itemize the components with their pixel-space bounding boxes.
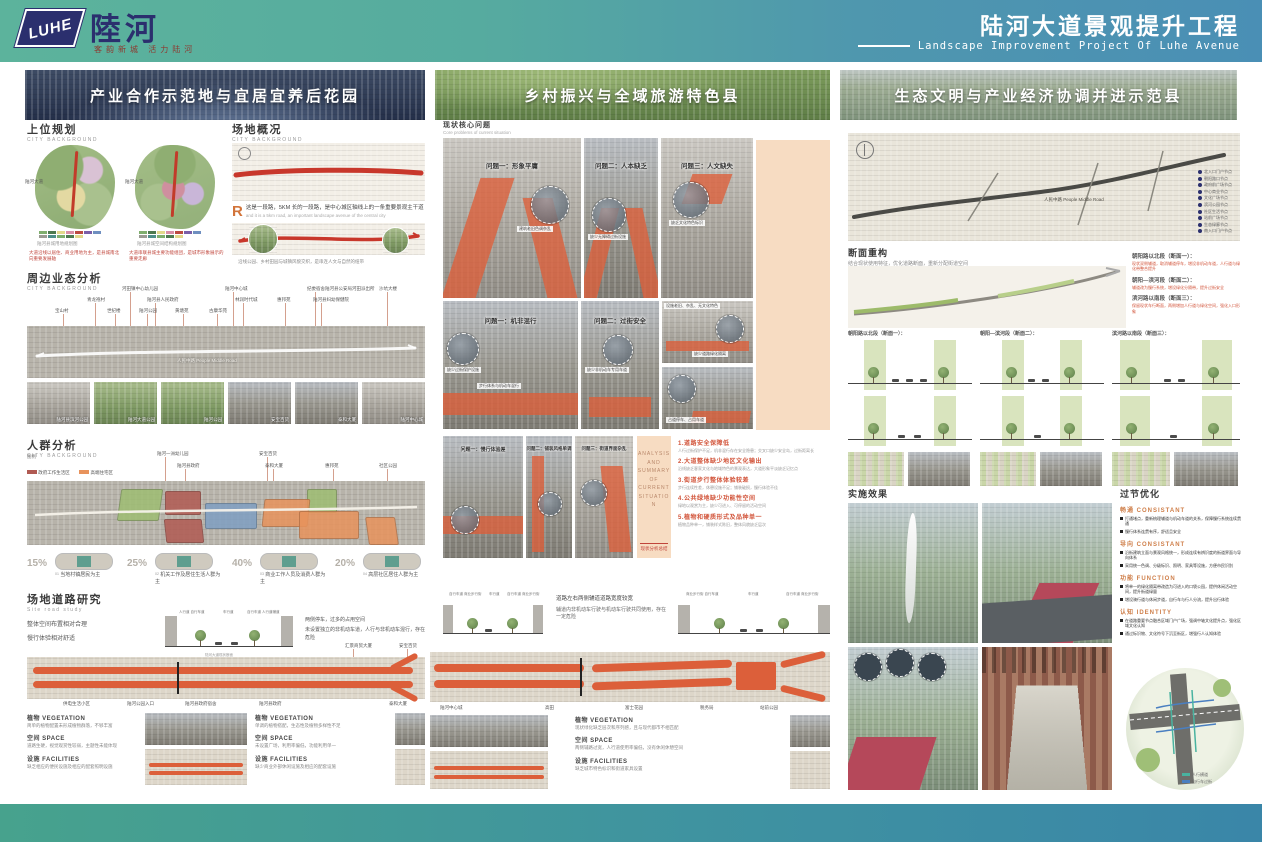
section-subtitle: Core problems of current situation: [443, 130, 511, 135]
poi-photo: 安宝百货: [228, 382, 291, 424]
node-section-head: 畅通 CONSISTANT: [1120, 505, 1242, 514]
banner-label: 生态文明与产业经济协调并进示范县: [840, 85, 1237, 106]
plan-callout: 陆河公园入口: [127, 701, 154, 707]
callout-circle: [668, 375, 696, 403]
road-plan-strip: [27, 657, 425, 699]
rebuild-note-head: 朝阳路以北段（断面一）：: [1132, 252, 1240, 260]
veg-body: 现状绿化缺乏层次和序列感，且与现代都市不相匹配: [575, 725, 775, 731]
render-photo-pergola: [982, 647, 1112, 790]
callout-circle: [581, 480, 607, 506]
signage-callout-circle: [854, 653, 882, 681]
poi-photo: 陆河大道公园: [94, 382, 157, 424]
stat-pct: 40%: [232, 558, 252, 569]
callout-caption: 设施老旧、杂乱、无文化特色: [664, 303, 720, 309]
summary-head: 2.大道整体缺少地区文化输出: [678, 456, 830, 465]
veg-body: 简单的植物配置未形成植物群落，不够丰富: [27, 723, 139, 729]
cross-section-existing: 人行道 自行车道 车行道 自行车道 人行道辅道 陆河大道现状断面: [165, 611, 293, 653]
space-title: 空间 SPACE: [255, 733, 387, 742]
rebuild-notes: 朝阳路以北段（断面一）： 现状双侧辅道，取消辅道停车，增设非机动车道，人行道与绿…: [1132, 252, 1240, 318]
veg-title: 植物 VEGETATION: [255, 713, 387, 722]
summary-head: 1.道路安全保障低: [678, 438, 830, 447]
stat-label: 03 商业工作人员及消费人群为主: [260, 572, 330, 586]
section-label: 车行道: [748, 592, 759, 597]
section-label: 自行车道 人行道辅道: [247, 610, 279, 615]
section-title: 断面重构: [848, 246, 968, 259]
group-title: 朝阳路以北段（断面一）：: [848, 330, 972, 337]
street-photo: [1040, 452, 1102, 486]
group-section-proposed: [848, 396, 972, 446]
section-title: 场地概况: [232, 121, 428, 137]
callout-circle: [592, 198, 626, 232]
stat-capsule: [55, 553, 113, 570]
peach-panel: [756, 140, 830, 430]
veg-title: 植物 VEGETATION: [575, 715, 775, 724]
avenue-white-line: [27, 326, 425, 378]
node-opt-title: 过节优化: [1120, 487, 1160, 500]
callout-caption: 建筑老旧色调杂乱: [517, 226, 553, 232]
section-marker: [177, 662, 179, 694]
node-bullet: 打通堵点，重新梳理辅道与机动车道的关系，保障慢行系统连续贯通: [1120, 516, 1242, 526]
signage-callout-circle: [918, 653, 946, 681]
space-body: 未设置广场，利用率偏低，功能利用单一: [255, 743, 387, 749]
veg-title: 植物 VEGETATION: [27, 713, 139, 722]
section-title: 场地道路研究: [27, 591, 425, 607]
group-title: 滨河路以南段（断面三）：: [1112, 330, 1240, 337]
plan-thumbnail: [430, 751, 548, 789]
node-bullet: 将单一的绿化隔离带改造为可进入的口袋公园，提供休闲活动空间，提升街道绿量: [1120, 584, 1242, 594]
summary-head: 3.街道步行整体体验较差: [678, 475, 830, 484]
poi-photo: 陆河公园: [161, 382, 224, 424]
segment-diagram: [848, 266, 1126, 328]
summary-list: 1.道路安全保障低 人行过街保护不足，机非混行存在安全隐患；交叉口缺少安全岛，过…: [678, 438, 830, 530]
section-group-1: 朝阳路以北段（断面一）：: [848, 330, 972, 337]
legend-item: 政府前广场节点: [1198, 182, 1232, 189]
context-diagram-2: [232, 223, 425, 255]
red-lane: [33, 667, 413, 674]
logo-name: 陸河: [90, 4, 160, 49]
legend-item: 北入口门户节点: [1198, 169, 1232, 176]
callout-circle: [531, 186, 569, 224]
poi-photo: 陆河县滨河公园: [27, 382, 90, 424]
page-subtitle: Landscape Improvement Project Of Luhe Av…: [858, 40, 1240, 52]
page-title: 陆河大道景观提升工程: [980, 7, 1240, 41]
sculpture-shape: [904, 513, 918, 623]
plan-callout: 站前公园: [760, 705, 778, 711]
street-photo: [145, 713, 247, 745]
planning-note: 大道沿线以居住、商业用地为主，是县城南北向重要发展轴: [29, 250, 121, 263]
summary-body: 人行过街保护不足，机非混行存在安全隐患；交叉口缺少安全岛，过街距离长: [678, 448, 830, 453]
problem-photo: 问题二：铺装风格单调: [526, 436, 572, 558]
mid-section-notes: 道路左右两侧辅道道路宽度较宽 辅道内非机动车行驶与机动车行驶共同使用，存在一定危…: [556, 596, 668, 621]
stat-capsule: [260, 553, 318, 570]
node-bullet: 沿街建筑立面与景观风格统一，形成连续有辨识度的街道界面与导向体系: [1120, 550, 1242, 560]
problem-photo: 占道停车、占用车道: [662, 367, 753, 429]
node-opt-sections: 畅通 CONSISTANT 打通堵点，重新梳理辅道与机动车道的关系，保障慢行系统…: [1120, 500, 1242, 639]
summary-body: 植物品种单一，铺装样式陈旧，整体风貌缺乏层次: [678, 522, 830, 527]
summary-band-en: ANALYSIS AND SUMMARY OF CURRENT SITUATIO…: [637, 450, 671, 510]
luhe-logo-icon: LUHE: [15, 9, 86, 47]
plan-thumbnail: [848, 452, 904, 486]
section-group-3: 滨河路以南段（断面三）：: [1112, 330, 1240, 337]
space-body: 两侧辅路过宽，人行道使用率偏低，没有休闲休憩空间: [575, 745, 775, 751]
section-label: 人行道 自行车道: [179, 610, 204, 615]
legend-item: 站前广场节点: [1198, 215, 1232, 222]
road-note-right: 两侧停车，过多的占用空间 未设置独立的非机动车道，人行与非机动车混行，存在危险: [305, 617, 425, 642]
segment-lines: [848, 266, 1126, 328]
header-band: LUHE 陸河 客韵新城 活力陆河 陆河大道景观提升工程 Landscape I…: [0, 0, 1262, 62]
tree-icon: [249, 630, 260, 641]
pergola-beams: [982, 647, 1112, 673]
callout-caption: 缺乏文化特色标识: [669, 220, 705, 226]
section-title: 现状核心问题: [443, 120, 511, 130]
section-subtitle: CITY BACKGROUND: [27, 137, 227, 143]
stat-group: 25%02 机关工作及居住生活人群为主: [127, 553, 147, 571]
asphalt: [982, 594, 1112, 643]
plan-thumbnail: [980, 452, 1036, 486]
problem-title: 问题一：机非混行: [443, 315, 578, 325]
avenue-dark-line: [848, 133, 1240, 241]
poster-board: LUHE 陸河 客韵新城 活力陆河 陆河大道景观提升工程 Landscape I…: [0, 0, 1262, 842]
cross-section-mid-right: 商业步行街 自行车道 车行道 自行车道 商业步行街: [678, 600, 830, 640]
problem-photo: 设施老旧、杂乱、无文化特色 缺少道路绿化隔离: [662, 301, 753, 363]
overview-note-en: and it is a 5km road, an important lands…: [232, 213, 425, 218]
street-photo: [790, 715, 830, 747]
rebuild-note-body: 辅道改为慢行系统，增设绿化分隔带，提升过街安全: [1132, 285, 1240, 290]
problem-title: 问题一：形象平庸: [443, 160, 581, 170]
node-bullet: 增设骑行道与休闲步道，自行车与行人分流，提升出行体验: [1120, 597, 1242, 602]
problem-photo: 问题三：人文缺失 缺乏文化特色标识: [661, 138, 753, 298]
callout-circle: [716, 315, 744, 343]
legend-item: 自行车过街: [1182, 779, 1212, 786]
summary-head: 5.植物和硬质形式及品种单一: [678, 512, 830, 521]
plan-callout: 陆河县政府: [259, 701, 282, 707]
banner-ecology: 生态文明与产业经济协调并进示范县: [840, 70, 1237, 120]
veg-body: 单调的植物搭配，生态性及植物多样性不足: [255, 723, 387, 729]
section-road-study: 场地道路研究 Site road study 整体空间布置相对合理 慢行体验相对…: [27, 591, 425, 713]
problem-title: 问题二：过街安全: [581, 315, 659, 325]
group-section-existing: [980, 340, 1104, 390]
section-rebuild-title: 断面重构 结合现状使用特征，优化道路断面，重新分配街道空间: [848, 246, 968, 267]
drop-cap: R: [232, 205, 243, 219]
facilities-title: 设施 FACILITIES: [575, 756, 775, 765]
road-note: 整体空间布置相对合理: [27, 621, 147, 629]
banner-rural: 乡村振兴与全域旅游特色县: [435, 70, 830, 120]
plan-callout: 陆河中心城: [440, 705, 463, 711]
poi-photo: 陆河中心城: [362, 382, 425, 424]
stat-label: 04 高层社区居住人群为主: [363, 572, 425, 579]
avenue-white-line: [27, 481, 425, 545]
problem-photo: 问题一：机非混行 缺少过街保护设施 步行体系与机动车混行: [443, 301, 578, 429]
node-bullet: 采用统一色调、分级标识、照明、家具等设施，方便市民识别: [1120, 563, 1242, 568]
callout-caption: 缺少非机动车专用车道: [585, 367, 629, 373]
facilities-title: 设施 FACILITIES: [255, 754, 387, 763]
rebuild-note-head: 滨河路以南段（断面三）：: [1132, 294, 1240, 302]
footer-band: [0, 804, 1262, 842]
avenue-label: 陆河大道: [25, 179, 43, 185]
summary-body: 绿地以观赏为主，缺少可进入、可停留的活动空间: [678, 503, 830, 508]
stat-group: 20%04 高层社区居住人群为主: [335, 553, 355, 571]
plan-callout: 高田: [545, 705, 554, 711]
title-dash: [858, 45, 910, 47]
road-plan-strip-mid: [430, 652, 830, 702]
section-title: 周边业态分析: [27, 270, 425, 286]
problem-title: 问题三：人文缺失: [661, 160, 753, 170]
logo-mark-text: LUHE: [27, 14, 80, 43]
stat-pct: 15%: [27, 558, 47, 569]
rebuild-note-body: 保留现状车行断面，两侧增加人行道与绿化空间，强化入口形象: [1132, 303, 1240, 314]
summary-head: 4.公共绿地缺少功能性空间: [678, 493, 830, 502]
problem-photo: 问题三：街道界面杂乱: [575, 436, 633, 558]
stat-pct: 25%: [127, 558, 147, 569]
plan-thumbnail: [395, 749, 425, 785]
section-group-2: 朝阳—滨河段（断面二）：: [980, 330, 1104, 337]
compass-icon: [238, 147, 251, 160]
section-label: 自行车道 商业步行街: [786, 592, 818, 597]
node-section-head: 导向 CONSISTANT: [1120, 539, 1242, 548]
overview-note-row: R 这是一段路，5KM 长的一段路，是中心城区轴线上的一条重要景观主干道 and…: [232, 205, 425, 219]
notes-block-mid: 植物 VEGETATION 现状绿化缺乏层次和序列感，且与现代都市不相匹配 空间…: [575, 715, 775, 776]
logo-tagline: 客韵新城 活力陆河: [94, 44, 196, 55]
intersection-diagram: 人行横道 自行车过街: [1126, 668, 1244, 790]
callout-circle: [673, 182, 709, 218]
facilities-body: 缺乏相应的便民设施及相应的配套照明设施: [27, 764, 139, 770]
callout-caption: 缺少过街保护设施: [445, 367, 481, 373]
map-legend-chips: [139, 231, 201, 238]
effect-title: 实施效果: [848, 487, 888, 500]
summary-body: 沿线缺乏客家文化与地域特色的景观表达，大道形象平淡缺乏记忆点: [678, 466, 830, 471]
masterplan-map: 人民中路 People Middle Road 北入口门户节点 朝阳路口节点 政…: [848, 133, 1240, 241]
map-caption: 陆河县城空间结构规划图: [137, 241, 187, 247]
problem-photo: 问题一：慢行体验差: [443, 436, 523, 558]
aerial-photo-circle: [248, 224, 278, 254]
problem-title: 问题一：慢行体验差: [443, 446, 523, 453]
street-photo: [430, 715, 548, 747]
planning-note: 大道串联县城主要功能组团，是城市形象展示的重要走廊: [129, 250, 225, 263]
building-block: [281, 616, 293, 646]
problem-photo: 问题二：人本缺乏 缺少无障碍过街设施: [584, 138, 658, 298]
notes-block-a: 植物 VEGETATION 简单的植物配置未形成植物群落，不够丰富 空间 SPA…: [27, 713, 139, 774]
building-block: [165, 616, 177, 646]
poi-label: 沙坑大楼: [379, 286, 397, 330]
avenue-line: [71, 151, 79, 217]
avenue-curve: [232, 143, 425, 201]
stat-group: 40%03 商业工作人员及消费人群为主: [232, 553, 252, 571]
node-section-head: 功能 FUNCTION: [1120, 573, 1242, 582]
tree-icon: [195, 630, 206, 641]
section-crowd: 人群分析 CITY BACKGROUND 图例 政府工作生活区 高端住宅区 核心…: [27, 437, 425, 587]
space-title: 空间 SPACE: [27, 733, 139, 742]
facilities-body: 缺少商业外部休闲设施及相应的配套设施: [255, 764, 387, 770]
plan-callout: 富士花园: [625, 705, 643, 711]
stat-pct: 20%: [335, 558, 355, 569]
callout-caption: 步行体系与机动车混行: [477, 383, 521, 389]
callout-caption: 缺少无障碍过街设施: [588, 234, 628, 240]
stat-capsule: [363, 553, 421, 570]
map-caption: 陆河县城用地规划图: [37, 241, 78, 247]
car-icon: [231, 642, 238, 645]
group-section-existing: [1112, 340, 1240, 390]
space-title: 空间 SPACE: [575, 735, 775, 744]
problem-photo: 问题一：形象平庸 建筑老旧色调杂乱: [443, 138, 581, 298]
car-icon: [215, 642, 222, 645]
banner-industry: 产业合作示范地与宜居宜养后花园: [25, 70, 425, 120]
legend-item: 政府工作生活区: [27, 470, 70, 475]
masterplan-legend: 北入口门户节点 朝阳路口节点 政府前广场节点 中心商业节点 文化广场节点 滨河公…: [1198, 169, 1232, 235]
node-bullet: 慢行体系连贯有序，舒适且安全: [1120, 529, 1242, 534]
notes-block-b: 植物 VEGETATION 单调的植物搭配，生态性及植物多样性不足 空间 SPA…: [255, 713, 387, 774]
legend-item: 南入口门户节点: [1198, 228, 1232, 235]
section-label: 车行道: [489, 592, 500, 597]
plan-callout: 泰和大厦: [389, 701, 407, 707]
plan-callout: 供电生活小区: [63, 701, 90, 707]
landuse-map: [35, 145, 115, 229]
group-section-proposed: [980, 396, 1104, 446]
red-bike-lane: [848, 737, 937, 790]
facilities-title: 设施 FACILITIES: [27, 754, 139, 763]
callout-caption: 缺少道路绿化隔离: [692, 351, 728, 357]
plan-callout: 税务局: [700, 705, 714, 711]
section-label: 自行车道 商业步行街: [507, 592, 539, 597]
section-label: 自行车道 商业步行街: [449, 592, 481, 597]
callout-circle: [603, 335, 633, 365]
plan-thumbnail: [790, 751, 830, 789]
rebuild-note-head: 朝阳—滨河段（断面二）：: [1132, 276, 1240, 284]
street-photo: [1174, 452, 1238, 486]
problem-title: 问题二：人本缺乏: [584, 160, 658, 170]
render-photo-street: [848, 647, 978, 790]
signage-callout-circle: [886, 649, 914, 677]
plan-thumbnail: [145, 749, 247, 785]
render-photo-gateway: [848, 503, 978, 643]
callout-circle: [538, 492, 562, 516]
section-title: 上位规划: [27, 121, 227, 137]
poi-photo: 泰和大厦: [295, 382, 358, 424]
context-diagram: [232, 143, 425, 201]
legend-item: 人行横道: [1182, 772, 1212, 779]
stat-label: 01 当地村镇居民为主: [55, 572, 121, 579]
plan-callout: 陆河县政府宿舍: [185, 701, 217, 707]
map-legend-chips: [39, 231, 101, 238]
problem-title: 问题三：街道界面杂乱: [575, 446, 633, 452]
callout-circle: [447, 333, 479, 365]
ground-line: [165, 646, 293, 647]
red-lane: [33, 681, 413, 688]
facilities-body: 缺乏城市特色标识和街道家具设置: [575, 766, 775, 772]
section-subtitle: CITY BACKGROUND: [27, 453, 425, 459]
compass-icon: [856, 141, 874, 159]
cross-section-mid-left: 自行车道 商业步行街 车行道 自行车道 商业步行街: [443, 600, 543, 640]
legend-title: 图例: [27, 454, 36, 460]
stat-group: 15%01 当地村镇居民为主: [27, 553, 47, 571]
banner-label: 乡村振兴与全域旅游特色县: [435, 85, 830, 106]
road-name-label: 人民中路 People Middle Road: [177, 358, 237, 364]
section-overview: 场地概况 CITY BACKGROUND R 这是一段路，5KM 长的一段路，是…: [232, 121, 428, 266]
group-title: 朝阳—滨河段（断面二）：: [980, 330, 1104, 337]
summary-body: 步行连续性差，休憩设施不足；铺装破损，慢行体验不佳: [678, 485, 830, 490]
street-photo: [395, 713, 425, 745]
render-photo-bikelane: [982, 503, 1112, 643]
road-note: 慢行体验相对舒适: [27, 635, 147, 643]
problem-photo: 问题二：过街安全 缺少非机动车专用车道: [581, 301, 659, 429]
walkway: [1006, 685, 1088, 790]
crowd-zone-map: [27, 481, 425, 545]
section-business: 周边业态分析 CITY BACKGROUND 河田镇中心幼儿园 陆河中心城 纪委…: [27, 270, 425, 430]
group-section-proposed: [1112, 396, 1240, 446]
callout-circle: [451, 506, 479, 534]
street-photo: [908, 452, 970, 486]
legend-item: 高端住宅区: [79, 470, 113, 475]
group-section-existing: [848, 340, 972, 390]
section-label: 车行道: [223, 610, 234, 615]
avenue-label: 陆河大道: [125, 179, 143, 185]
legend-item: 文化广场节点: [1198, 195, 1232, 202]
summary-band: ANALYSIS AND SUMMARY OF CURRENT SITUATIO…: [637, 436, 671, 558]
aerial-strip-map: 人民中路 People Middle Road: [27, 326, 425, 378]
space-body: 道路生硬，视觉观赏性较弱，主题性未能体现: [27, 743, 139, 749]
intersection-legend: 人行横道 自行车过街: [1182, 772, 1212, 785]
node-bullet: 通过标识物、文化符号下沉至街区，增强行人认知体验: [1120, 631, 1242, 636]
section-title: 人群分析: [27, 437, 425, 453]
road-name-label: 人民中路 People Middle Road: [1044, 197, 1104, 203]
problem-title: 问题二：铺装风格单调: [526, 446, 572, 452]
aerial-photo-circle: [382, 227, 409, 254]
rebuild-note-body: 现状双侧辅道，取消辅道停车，增设非机动车道，人行道与绿化带整合提升: [1132, 261, 1240, 272]
section-problems-title: 现状核心问题 Core problems of current situatio…: [443, 120, 511, 135]
stat-label: 02 机关工作及居住生活人群为主: [155, 572, 225, 586]
overview-caption: 沿线公园、乡村田园与城镇风貌交织，是串连人文与自然的纽带: [238, 259, 364, 265]
node-bullet: 在道路重要节点融合区域门户广场，强调中轴文化提升点，强化区域文化认知: [1120, 618, 1242, 628]
banner-label: 产业合作示范地与宜居宜养后花园: [25, 85, 425, 106]
structure-map: [135, 145, 215, 229]
summary-band-cn: 现状分析总结: [640, 543, 668, 552]
plan-thumbnail: [1112, 452, 1170, 486]
overview-note: 这是一段路，5KM 长的一段路，是中心城区轴线上的一条重要景观主干道: [232, 205, 425, 213]
node-section-head: 认知 IDENTITY: [1120, 607, 1242, 616]
section-label: 商业步行街 自行车道: [686, 592, 718, 597]
section-planning: 上位规划 CITY BACKGROUND 陆河大道 陆河大道 陆河县城用地规划图…: [27, 121, 227, 266]
avenue-line: [171, 151, 179, 217]
legend-item: 滨河公园节点: [1198, 202, 1232, 209]
stat-capsule: [155, 553, 213, 570]
callout-caption: 占道停车、占用车道: [666, 417, 706, 423]
